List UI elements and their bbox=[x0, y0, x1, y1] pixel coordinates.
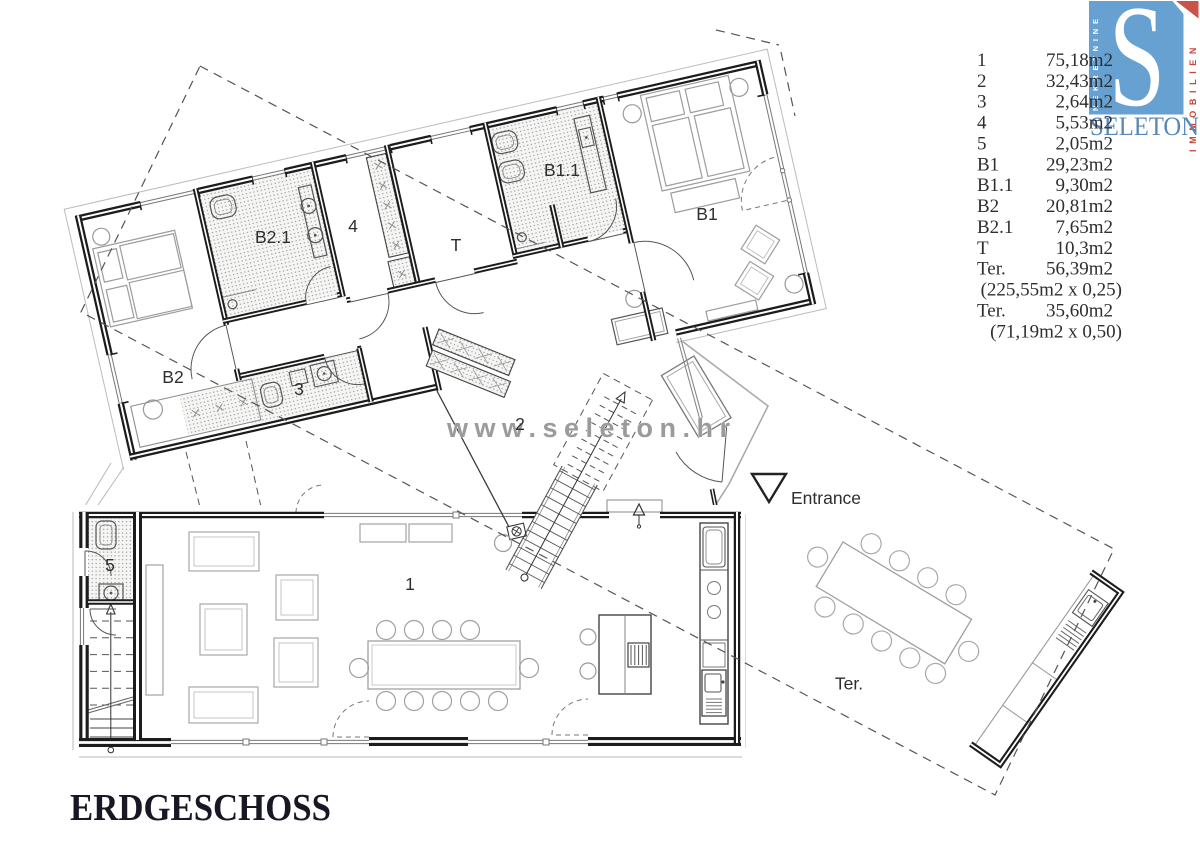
svg-text:35,60m2: 35,60m2 bbox=[1046, 300, 1113, 321]
svg-text:5: 5 bbox=[105, 555, 115, 575]
svg-text:2: 2 bbox=[977, 71, 987, 92]
svg-text:B2.1: B2.1 bbox=[977, 217, 1013, 238]
svg-text:3: 3 bbox=[977, 92, 987, 113]
svg-text:3: 3 bbox=[294, 379, 304, 399]
svg-text:Ter.: Ter. bbox=[835, 673, 863, 693]
svg-text:9,30m2: 9,30m2 bbox=[1055, 175, 1113, 196]
svg-text:T: T bbox=[977, 238, 989, 259]
svg-text:2: 2 bbox=[515, 414, 525, 434]
svg-text:Ter.: Ter. bbox=[977, 300, 1006, 321]
svg-text:7,65m2: 7,65m2 bbox=[1055, 217, 1113, 238]
svg-text:5,53m2: 5,53m2 bbox=[1055, 113, 1113, 134]
svg-text:1: 1 bbox=[977, 50, 987, 71]
svg-text:4: 4 bbox=[977, 113, 987, 134]
svg-text:B2: B2 bbox=[977, 196, 999, 217]
svg-text:20,81m2: 20,81m2 bbox=[1046, 196, 1113, 217]
svg-text:B1: B1 bbox=[977, 154, 999, 175]
svg-text:5: 5 bbox=[977, 134, 987, 155]
svg-text:B2.1: B2.1 bbox=[255, 227, 291, 247]
svg-text:(71,19m2 x 0,50): (71,19m2 x 0,50) bbox=[990, 321, 1122, 342]
svg-text:Ter.: Ter. bbox=[977, 259, 1006, 280]
svg-text:B1: B1 bbox=[696, 204, 717, 224]
svg-text:56,39m2: 56,39m2 bbox=[1046, 259, 1113, 280]
svg-text:2,05m2: 2,05m2 bbox=[1055, 134, 1113, 155]
svg-text:10,3m2: 10,3m2 bbox=[1055, 238, 1113, 259]
svg-text:B2: B2 bbox=[162, 367, 183, 387]
svg-text:B1.1: B1.1 bbox=[544, 160, 580, 180]
svg-text:Entrance: Entrance bbox=[791, 488, 861, 508]
svg-text:75,18m2: 75,18m2 bbox=[1046, 50, 1113, 71]
svg-text:T: T bbox=[451, 235, 462, 255]
svg-text:32,43m2: 32,43m2 bbox=[1046, 71, 1113, 92]
svg-text:ERDGESCHOSS: ERDGESCHOSS bbox=[70, 787, 331, 829]
svg-text:B1.1: B1.1 bbox=[977, 175, 1013, 196]
svg-text:29,23m2: 29,23m2 bbox=[1046, 154, 1113, 175]
svg-text:2,64m2: 2,64m2 bbox=[1055, 92, 1113, 113]
svg-text:4: 4 bbox=[348, 216, 358, 236]
svg-text:www.seleton.hr: www.seleton.hr bbox=[446, 413, 737, 443]
svg-text:1: 1 bbox=[405, 574, 415, 594]
svg-text:(225,55m2 x 0,25): (225,55m2 x 0,25) bbox=[981, 280, 1122, 301]
